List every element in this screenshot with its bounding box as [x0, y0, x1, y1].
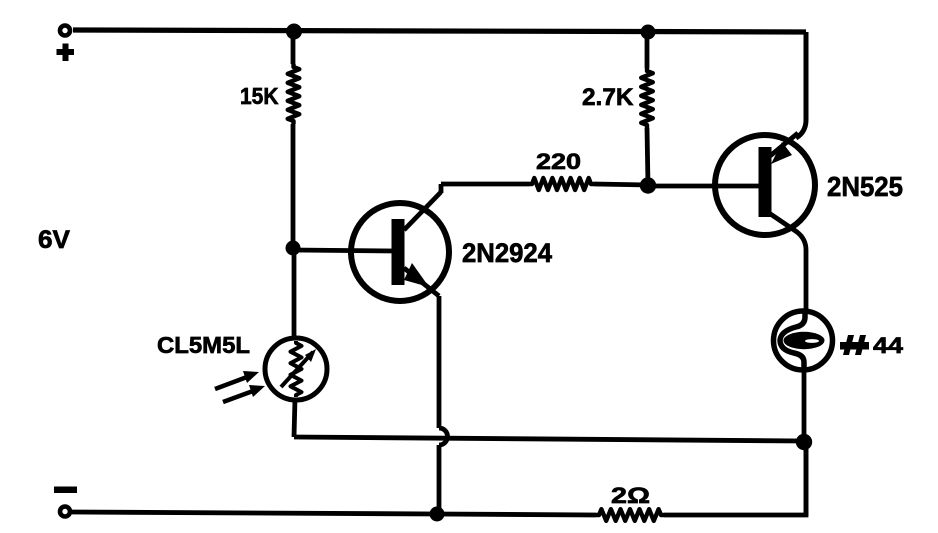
- svg-text:CL5M5L: CL5M5L: [157, 332, 250, 358]
- svg-text:2Ω: 2Ω: [611, 483, 650, 508]
- svg-text:2N2924: 2N2924: [462, 238, 552, 268]
- svg-text:6V: 6V: [38, 226, 70, 254]
- svg-text:2N525: 2N525: [827, 171, 903, 202]
- svg-text:44: 44: [873, 333, 904, 358]
- svg-text:220: 220: [536, 149, 581, 174]
- svg-text:2.7K: 2.7K: [582, 84, 634, 111]
- svg-text:15K: 15K: [240, 83, 279, 109]
